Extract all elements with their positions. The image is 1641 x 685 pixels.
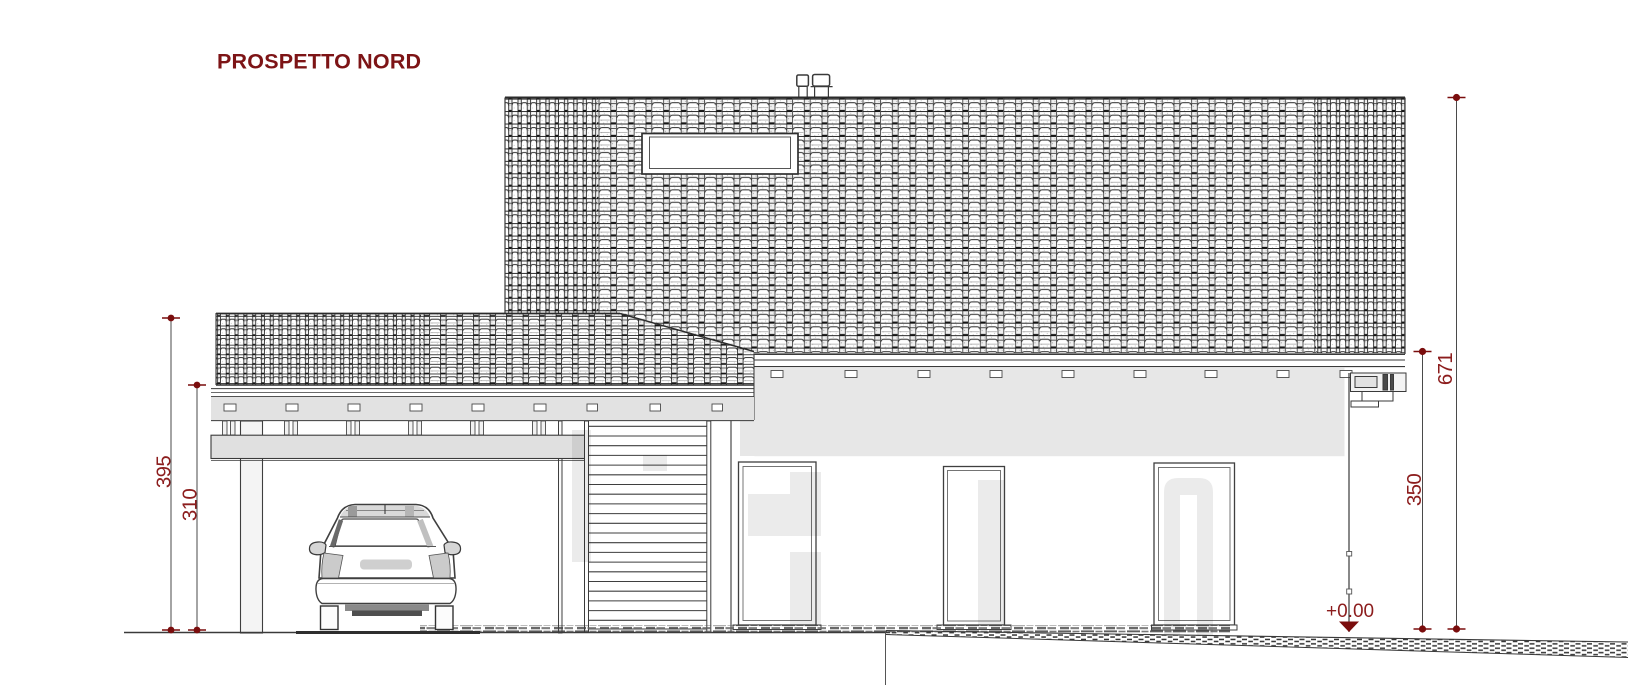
svg-text:+0.00: +0.00	[1326, 601, 1374, 622]
svg-text:671: 671	[1434, 353, 1457, 385]
svg-text:PROSPETTO NORD: PROSPETTO NORD	[217, 50, 421, 74]
svg-text:310: 310	[179, 489, 202, 521]
svg-text:350: 350	[1403, 474, 1426, 506]
svg-text:395: 395	[153, 456, 176, 488]
